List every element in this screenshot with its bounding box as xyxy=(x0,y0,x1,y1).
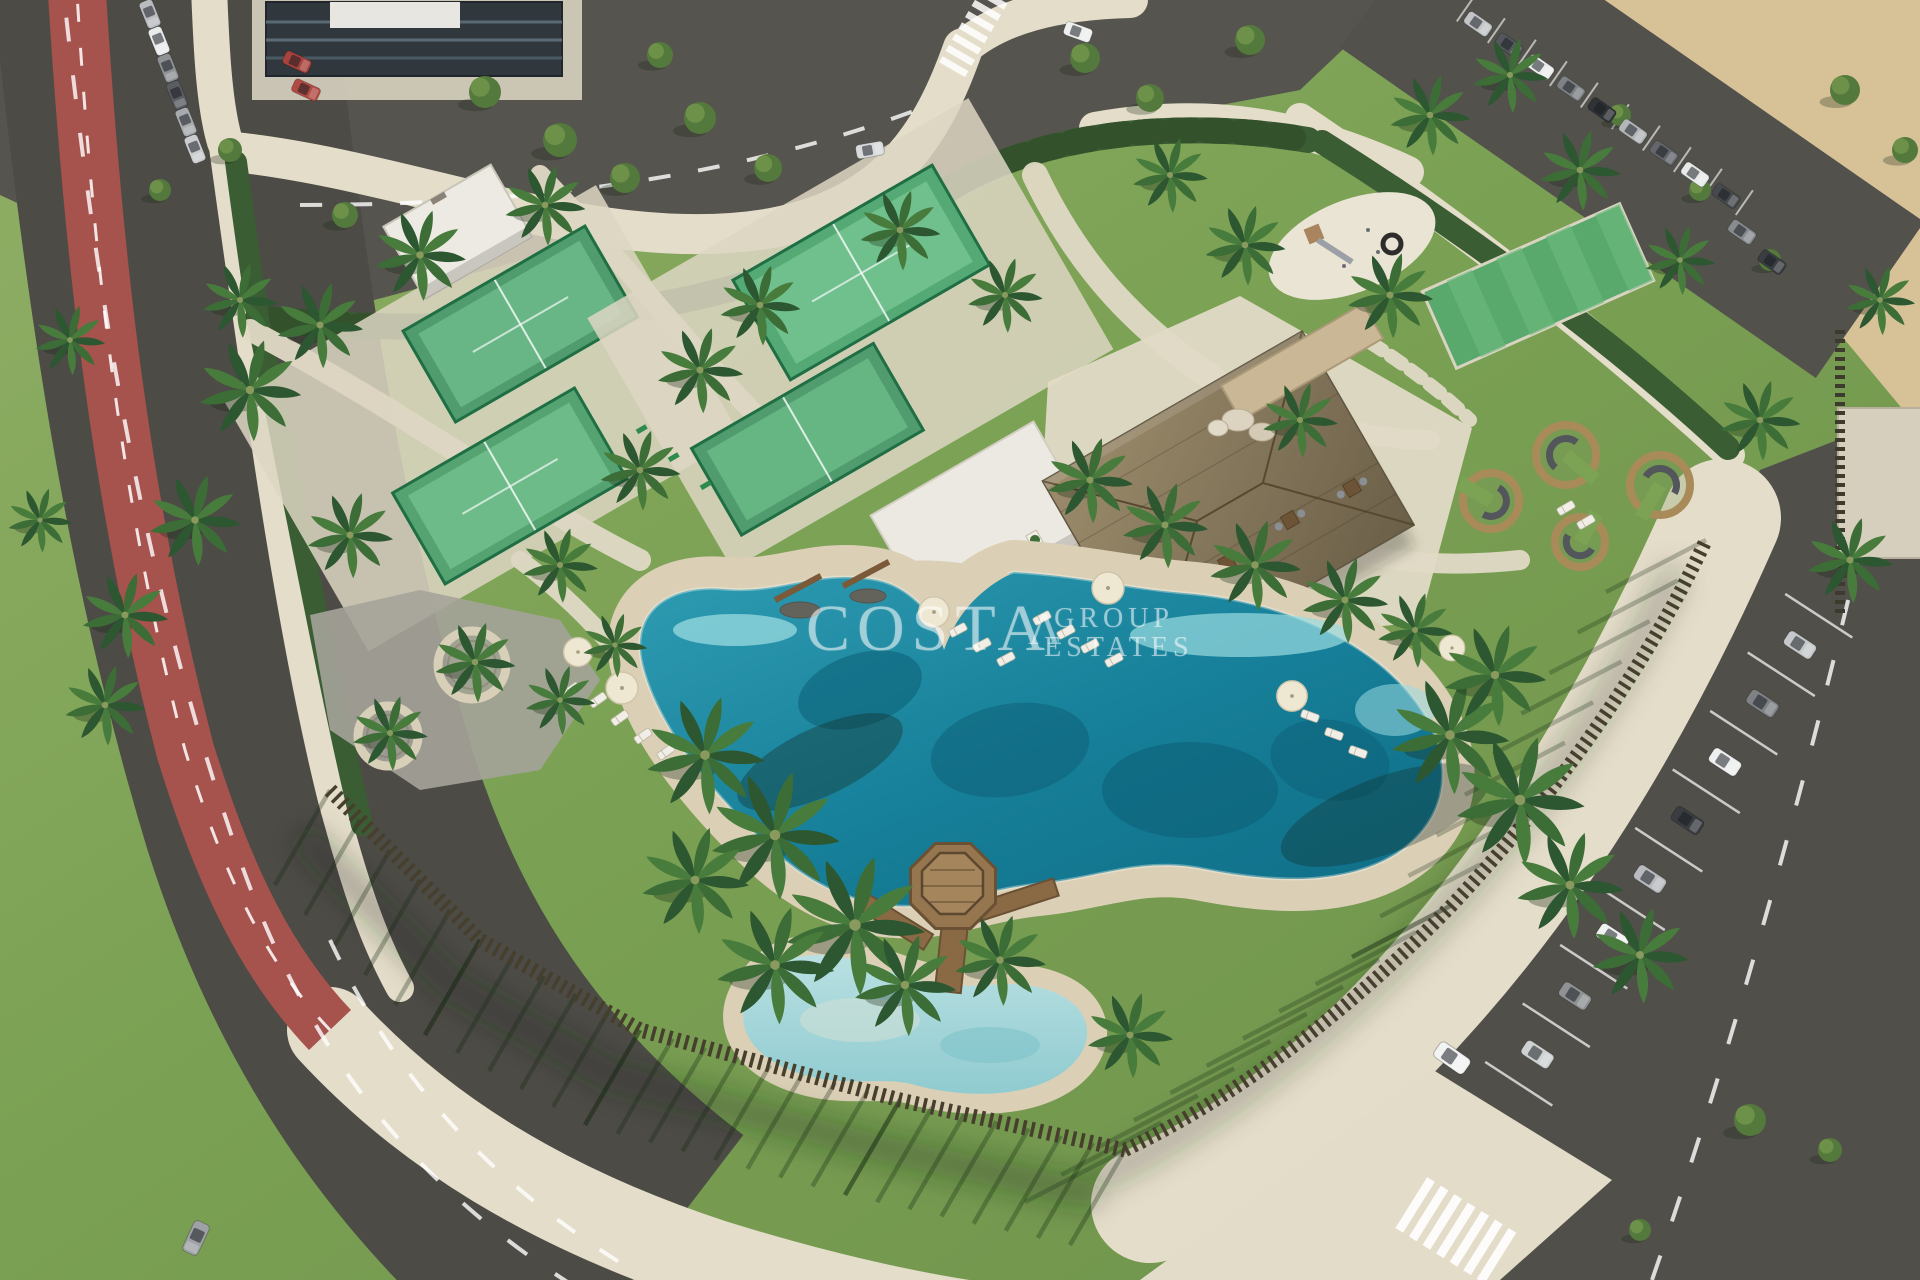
seating-pod xyxy=(1630,455,1690,518)
umbrella xyxy=(606,672,638,704)
umbrella xyxy=(1277,681,1307,711)
scene-canvas xyxy=(0,0,1920,1280)
umbrella xyxy=(919,597,949,627)
side-building xyxy=(1838,408,1920,558)
seating-pod xyxy=(1536,425,1596,485)
aerial-resort-photo: COSTA Λ GROUP ESTATES xyxy=(0,0,1920,1280)
umbrella xyxy=(1092,572,1124,604)
seating-pod xyxy=(1460,473,1519,529)
